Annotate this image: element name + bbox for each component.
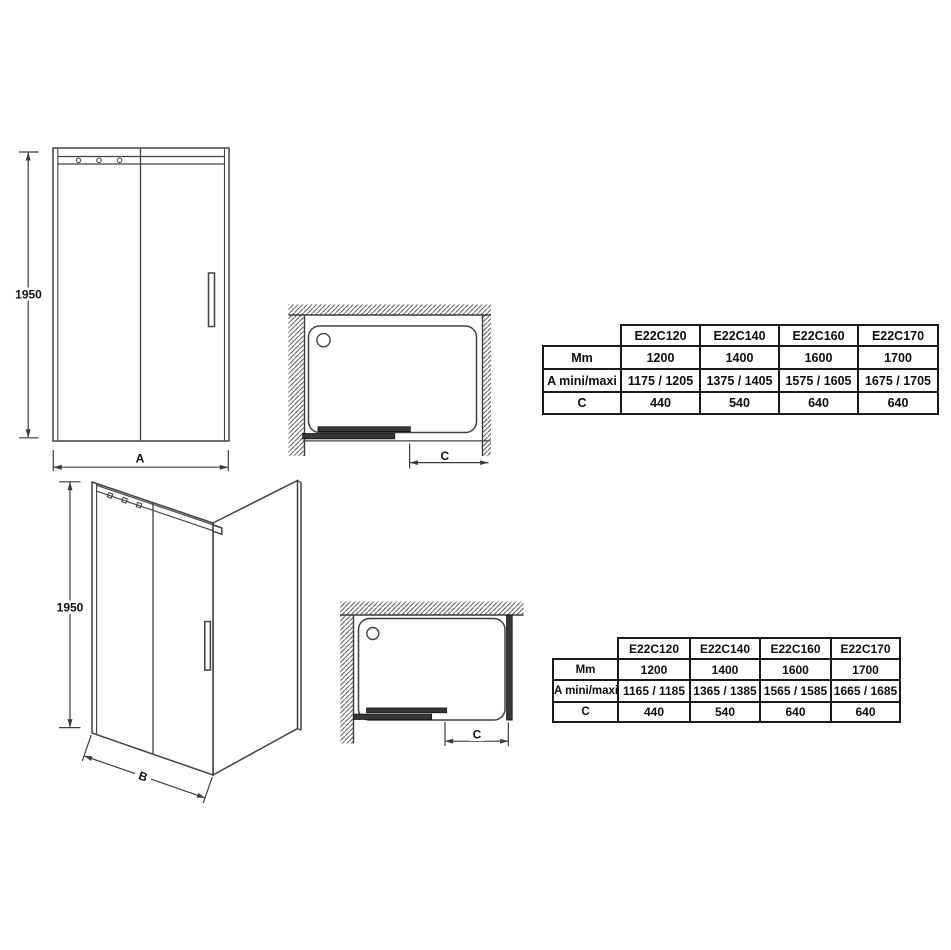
spec-table-corner: E22C120 E22C140 E22C160 E22C170 Mm 1200 …: [552, 637, 901, 723]
shower-tray: [359, 619, 506, 721]
spec-value: 1200: [621, 346, 700, 369]
wall-hatch: [289, 305, 492, 316]
spec-value: 540: [690, 702, 760, 722]
front-view-drawing: 1950 A: [0, 140, 250, 480]
model-column-header: E22C120: [621, 325, 700, 346]
spec-row-label: C: [553, 702, 618, 722]
spec-value: 640: [779, 392, 858, 414]
spec-row-label: A mini/maxi: [543, 369, 621, 392]
spec-value: 640: [831, 702, 900, 722]
spec-value: 1375 / 1405: [700, 369, 779, 392]
fixed-panel: [354, 714, 432, 719]
spec-value: 1565 / 1585: [760, 680, 831, 702]
spec-value: 540: [700, 392, 779, 414]
model-column-header: E22C160: [760, 638, 831, 659]
table-row: Mm 1200 1400 1600 1700: [543, 346, 938, 369]
corner-cell: [553, 638, 618, 659]
spec-value: 1400: [700, 346, 779, 369]
spec-value: 1665 / 1685: [831, 680, 900, 702]
model-column-header: E22C140: [700, 325, 779, 346]
spec-value: 1175 / 1205: [621, 369, 700, 392]
wall-hatch: [289, 315, 305, 456]
dimension-arrow: [500, 739, 508, 744]
depth-dimension-label: C: [473, 727, 482, 741]
table-row: C 440 540 640 640: [553, 702, 900, 722]
spec-row-label: C: [543, 392, 621, 414]
depth-dimension: C: [410, 444, 489, 469]
wall-hatch: [340, 615, 354, 744]
top-view-drawing-corner: C: [332, 595, 555, 760]
spec-value: 1600: [760, 659, 831, 680]
side-panel: [507, 615, 513, 720]
dimension-arrow: [410, 460, 418, 465]
technical-drawing-page: 1950 A: [0, 0, 951, 950]
spec-value: 1700: [858, 346, 938, 369]
table-row: A mini/maxi 1165 / 1185 1365 / 1385 1565…: [553, 680, 900, 702]
shower-tray: [309, 326, 477, 433]
spec-value: 1400: [690, 659, 760, 680]
depth-dimension-label: C: [440, 449, 449, 463]
dimension-arrow: [84, 756, 92, 761]
dimension-arrow: [68, 482, 73, 491]
wall-hatch: [340, 602, 524, 616]
spec-value: 1200: [618, 659, 690, 680]
table-row: E22C120 E22C140 E22C160 E22C170: [553, 638, 900, 659]
model-column-header: E22C160: [779, 325, 858, 346]
table-row: Mm 1200 1400 1600 1700: [553, 659, 900, 680]
height-dimension: 1950: [55, 482, 86, 728]
dimension-arrow: [68, 719, 73, 728]
model-column-header: E22C120: [618, 638, 690, 659]
top-view-drawing-recessed: C: [270, 295, 500, 480]
spec-value: 640: [858, 392, 938, 414]
dimension-arrow: [480, 460, 488, 465]
dimension-arrow: [197, 793, 205, 798]
model-column-header: E22C170: [831, 638, 900, 659]
fixed-panel: [303, 434, 395, 439]
table-row: C 440 540 640 640: [543, 392, 938, 414]
spec-row-label: Mm: [543, 346, 621, 369]
spec-row-label: A mini/maxi: [553, 680, 618, 702]
sliding-panel: [367, 708, 447, 713]
side-panel: [213, 481, 298, 776]
wall-hatch: [483, 315, 492, 456]
depth-dimension: C: [445, 722, 508, 746]
model-column-header: E22C170: [858, 325, 938, 346]
height-dimension-label: 1950: [57, 600, 84, 614]
spec-table-recessed: E22C120 E22C140 E22C160 E22C170 Mm 1200 …: [542, 324, 939, 415]
spec-value: 1700: [831, 659, 900, 680]
spec-value: 440: [618, 702, 690, 722]
spec-value: 1575 / 1605: [779, 369, 858, 392]
spec-row-label: Mm: [553, 659, 618, 680]
dimension-arrow: [26, 429, 31, 438]
table-row: E22C120 E22C140 E22C160 E22C170: [543, 325, 938, 346]
spec-value: 1675 / 1705: [858, 369, 938, 392]
model-column-header: E22C140: [690, 638, 760, 659]
table-row: A mini/maxi 1175 / 1205 1375 / 1405 1575…: [543, 369, 938, 392]
spec-value: 1600: [779, 346, 858, 369]
handle-icon: [209, 273, 215, 327]
height-dimension: 1950: [14, 152, 44, 438]
spec-value: 1365 / 1385: [690, 680, 760, 702]
sliding-panel: [318, 427, 410, 432]
handle-icon: [205, 622, 211, 671]
spec-value: 440: [621, 392, 700, 414]
corner-view-drawing: 1950 B: [40, 462, 325, 810]
corner-cell: [543, 325, 621, 346]
spec-value: 640: [760, 702, 831, 722]
dimension-arrow: [445, 739, 453, 744]
spec-value: 1165 / 1185: [618, 680, 690, 702]
dimension-arrow: [26, 152, 31, 161]
height-dimension-label: 1950: [15, 287, 42, 301]
